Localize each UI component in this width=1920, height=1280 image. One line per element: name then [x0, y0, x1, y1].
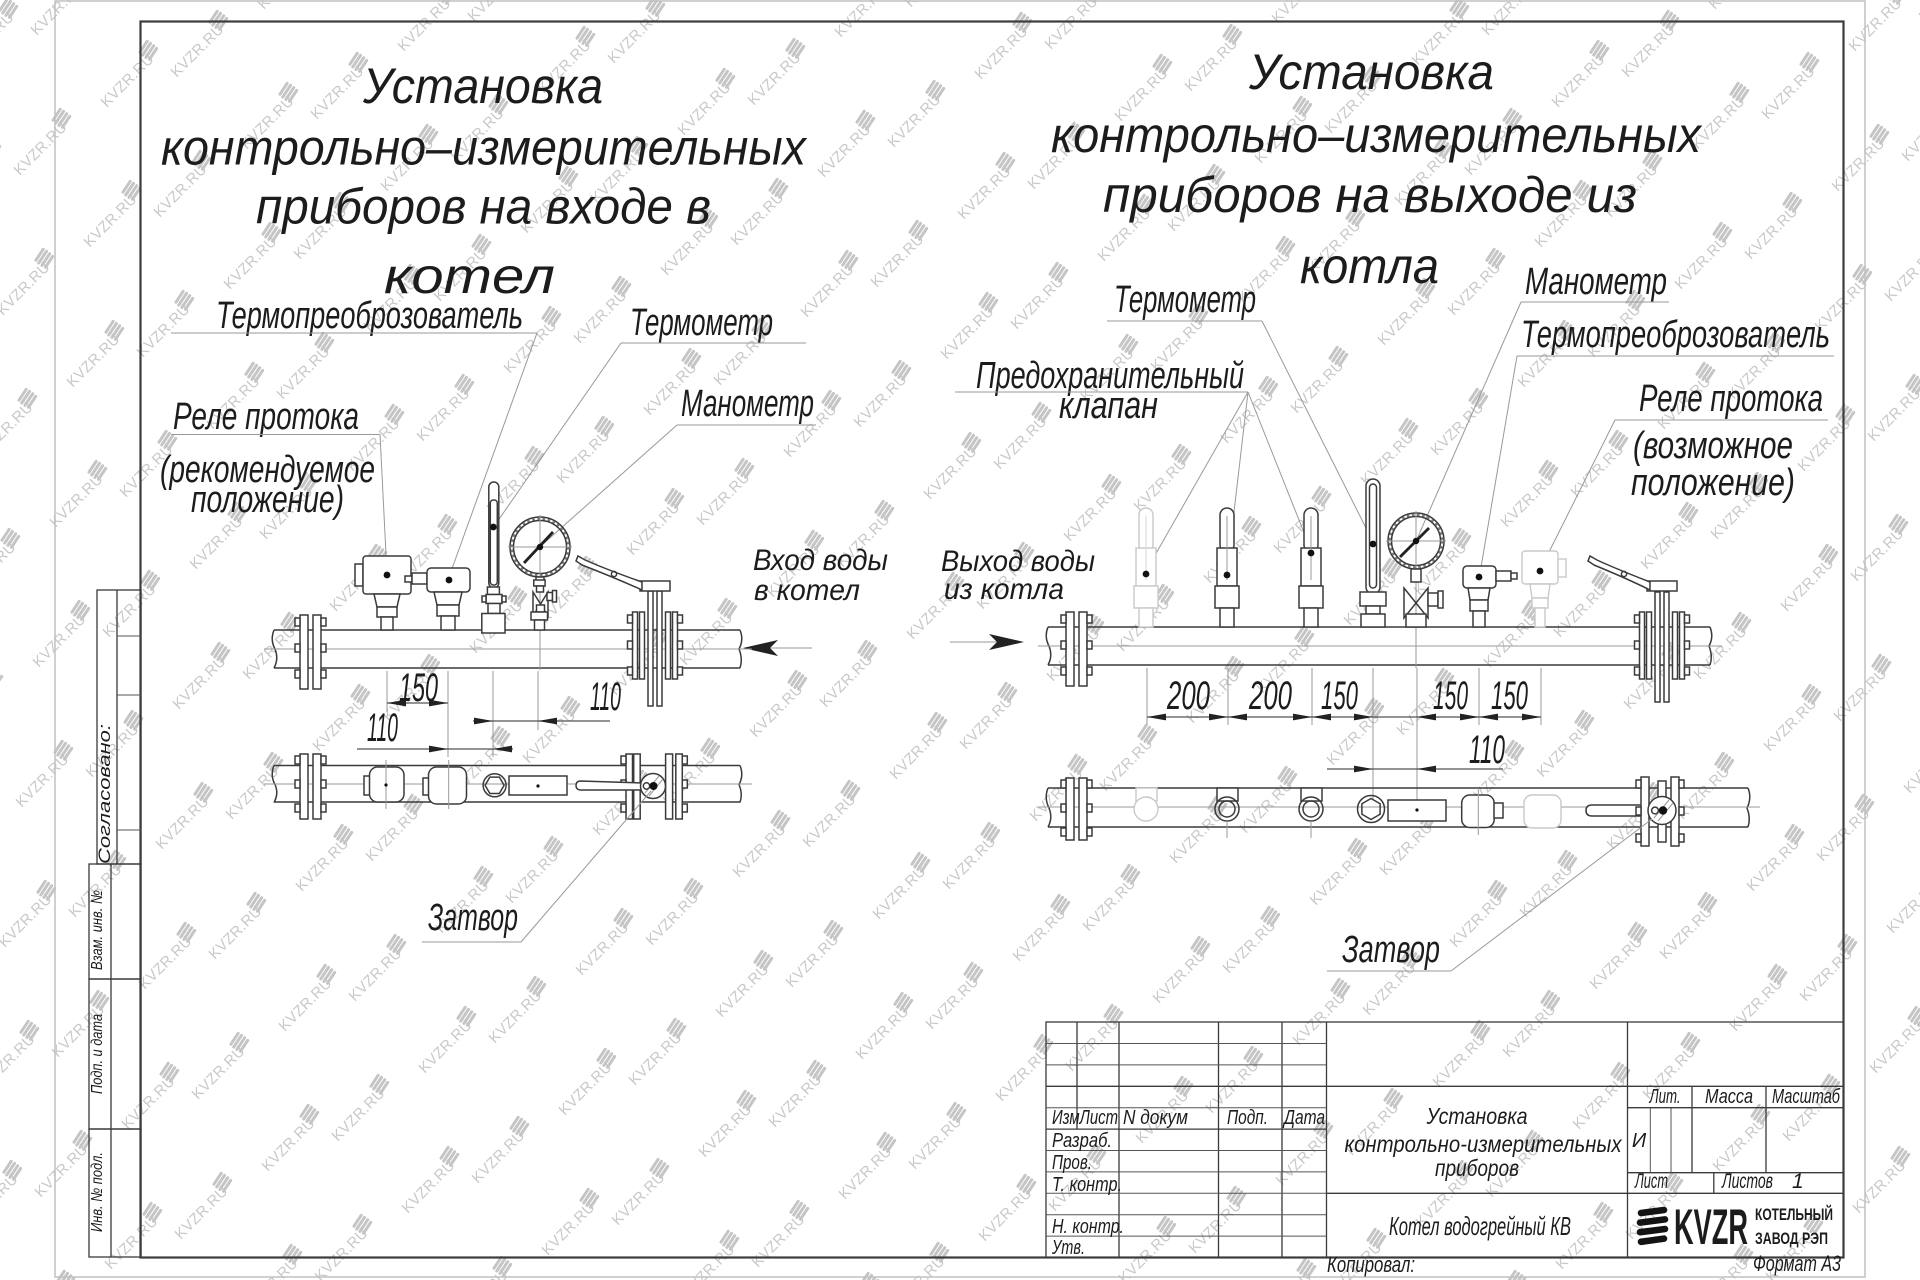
svg-text:И: И: [1632, 1130, 1647, 1152]
svg-text:Термометр: Термометр: [1114, 279, 1256, 321]
svg-text:Реле протока: Реле протока: [1639, 378, 1823, 420]
svg-text:Масштаб: Масштаб: [1772, 1086, 1841, 1108]
svg-text:(возможное: (возможное: [1633, 425, 1793, 467]
svg-text:КОТЕЛЬНЫЙ: КОТЕЛЬНЫЙ: [1755, 1205, 1833, 1224]
svg-text:Установка: Установка: [1248, 44, 1494, 100]
svg-text:Манометр: Манометр: [1525, 261, 1667, 303]
svg-text:приборов: приборов: [1435, 1155, 1519, 1181]
svg-text:Затвор: Затвор: [1342, 929, 1440, 971]
svg-text:Затвор: Затвор: [428, 897, 518, 939]
svg-text:1: 1: [1792, 1170, 1804, 1193]
svg-text:Лист: Лист: [1634, 1170, 1668, 1193]
svg-text:контрольно-измерительных: контрольно-измерительных: [1345, 1131, 1623, 1157]
svg-text:Установка: Установка: [1426, 1103, 1528, 1129]
svg-text:Копировал:: Копировал:: [1327, 1252, 1415, 1277]
svg-text:Листов: Листов: [1721, 1170, 1773, 1193]
svg-text:Утв.: Утв.: [1051, 1237, 1085, 1259]
svg-text:клапан: клапан: [1059, 385, 1158, 427]
svg-text:Подп. и дата: Подп. и дата: [89, 1014, 106, 1094]
svg-text:110: 110: [590, 675, 621, 719]
svg-text:контрольно–измерительных: контрольно–измерительных: [161, 120, 808, 176]
svg-text:ИзмЛист: ИзмЛист: [1052, 1107, 1118, 1129]
svg-text:котла: котла: [1300, 238, 1439, 294]
svg-text:Пров.: Пров.: [1052, 1152, 1092, 1174]
svg-text:Т. контр.: Т. контр.: [1052, 1174, 1122, 1196]
svg-text:Подп.: Подп.: [1227, 1107, 1268, 1129]
svg-text:Разраб.: Разраб.: [1052, 1130, 1112, 1152]
svg-text:150: 150: [1491, 674, 1528, 718]
svg-text:110: 110: [367, 706, 398, 750]
svg-text:Формат А3: Формат А3: [1753, 1251, 1842, 1276]
svg-text:Термопреоброзователь: Термопреоброзователь: [216, 295, 523, 337]
svg-text:Взам. инв. №: Взам. инв. №: [89, 890, 106, 970]
svg-text:Лит.: Лит.: [1648, 1086, 1680, 1108]
svg-text:приборов на входе в: приборов на входе в: [256, 179, 711, 235]
svg-text:из котла: из котла: [944, 573, 1064, 606]
svg-text:200: 200: [1166, 674, 1210, 718]
svg-text:ЗАВОД РЭП: ЗАВОД РЭП: [1755, 1229, 1828, 1248]
svg-text:контрольно–измерительных: контрольно–измерительных: [1051, 107, 1703, 163]
svg-text:Вход воды: Вход воды: [753, 544, 888, 577]
svg-text:Масса: Масса: [1705, 1086, 1753, 1108]
svg-text:150: 150: [399, 666, 438, 710]
svg-text:приборов на выходе из: приборов на выходе из: [1103, 167, 1637, 223]
svg-text:Инв. № подл.: Инв. № подл.: [89, 1152, 106, 1232]
svg-text:KVZR: KVZR: [1674, 1199, 1748, 1255]
svg-text:110: 110: [1469, 728, 1505, 772]
svg-text:Дата: Дата: [1282, 1107, 1325, 1129]
svg-text:Н. контр.: Н. контр.: [1052, 1216, 1124, 1238]
svg-text:положение): положение): [191, 479, 344, 521]
svg-text:Термопреоброзователь: Термопреоброзователь: [1521, 314, 1830, 356]
svg-text:Реле протока: Реле протока: [173, 396, 359, 438]
svg-text:в котел: в котел: [754, 574, 860, 607]
svg-text:Котел водогрейный КВ: Котел водогрейный КВ: [1389, 1211, 1571, 1241]
svg-text:200: 200: [1248, 674, 1292, 718]
svg-text:150: 150: [1321, 674, 1358, 718]
svg-text:Согласовано:: Согласовано:: [95, 724, 114, 864]
svg-text:Термометр: Термометр: [630, 302, 773, 344]
svg-text:Установка: Установка: [362, 58, 603, 114]
svg-text:Манометр: Манометр: [681, 383, 814, 425]
svg-text:N докум: N докум: [1123, 1107, 1188, 1129]
svg-text:положение): положение): [1631, 462, 1795, 504]
svg-text:150: 150: [1433, 674, 1468, 718]
